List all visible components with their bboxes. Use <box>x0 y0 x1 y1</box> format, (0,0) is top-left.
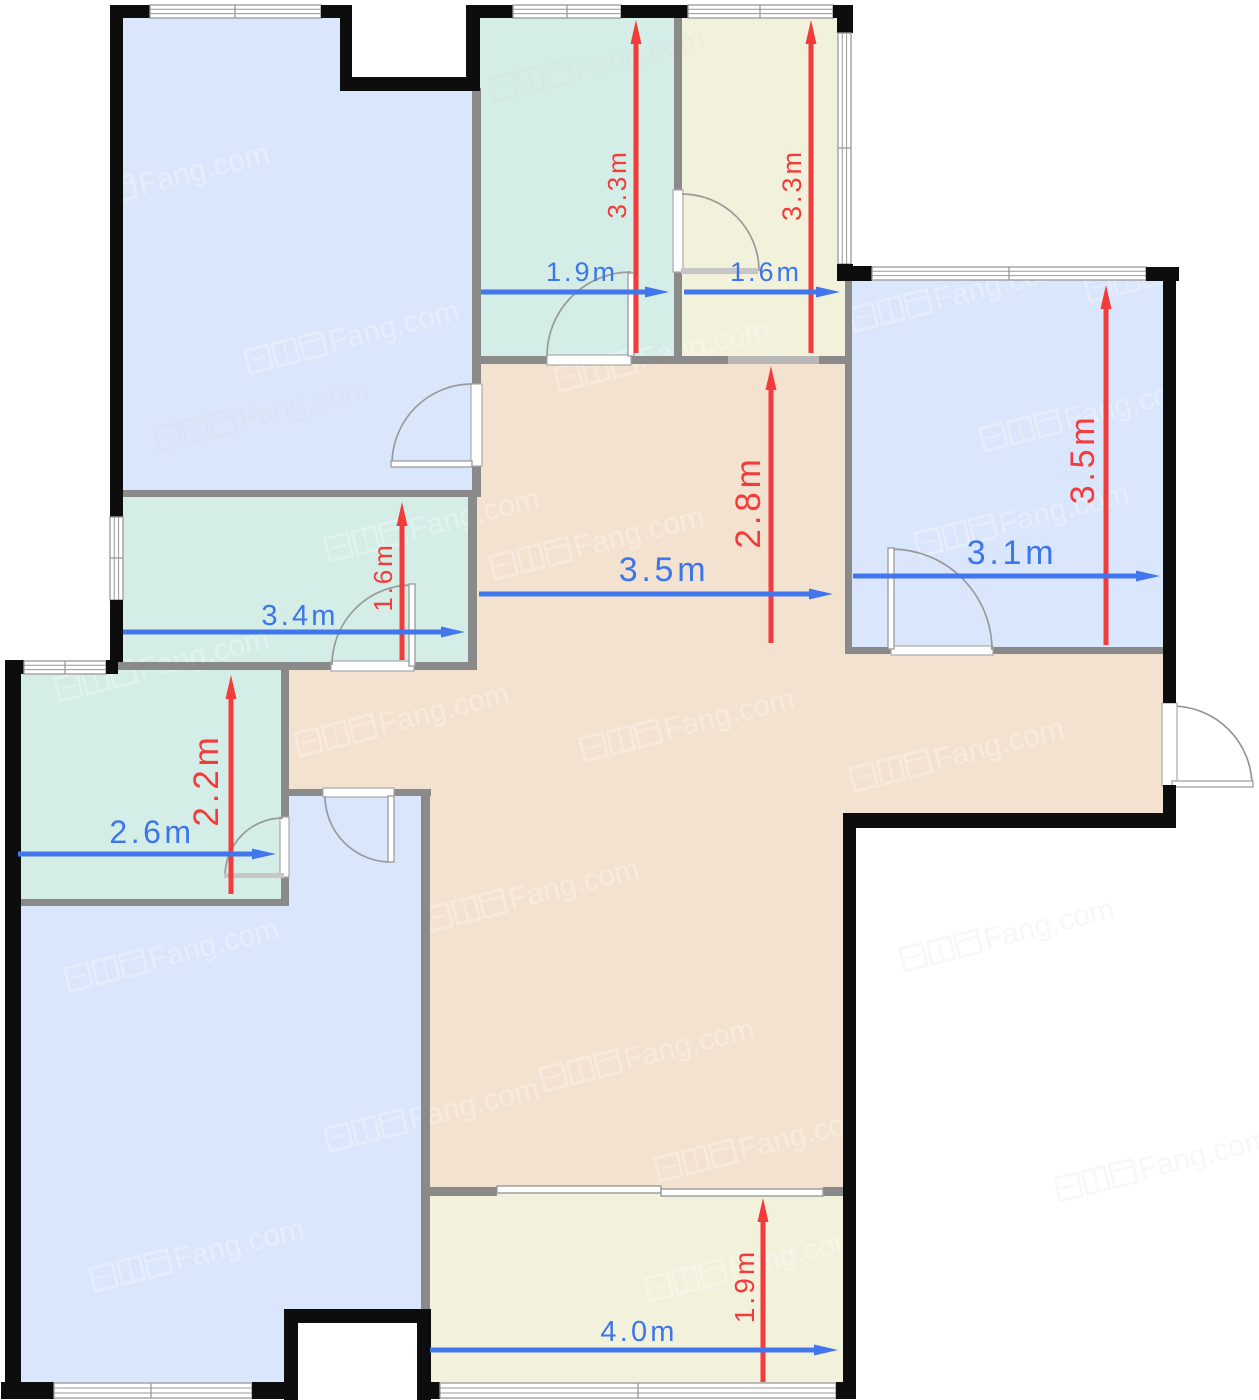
svg-text:3.1m: 3.1m <box>967 534 1058 572</box>
svg-text:1.9m: 1.9m <box>729 1249 760 1324</box>
svg-text:1.9m: 1.9m <box>546 257 618 287</box>
svg-text:3.3m: 3.3m <box>602 149 632 218</box>
svg-text:3.5m: 3.5m <box>1064 414 1102 505</box>
svg-text:2.8m: 2.8m <box>729 455 768 548</box>
svg-text:3.5m: 3.5m <box>619 551 710 589</box>
svg-text:2.2m: 2.2m <box>187 733 226 826</box>
svg-text:1.6m: 1.6m <box>730 257 802 287</box>
svg-text:4.0m: 4.0m <box>600 1316 677 1348</box>
svg-text:1.6m: 1.6m <box>368 542 398 611</box>
svg-text:3.4m: 3.4m <box>261 600 338 632</box>
svg-text:2.6m: 2.6m <box>109 814 194 850</box>
svg-text:3.3m: 3.3m <box>777 149 807 221</box>
